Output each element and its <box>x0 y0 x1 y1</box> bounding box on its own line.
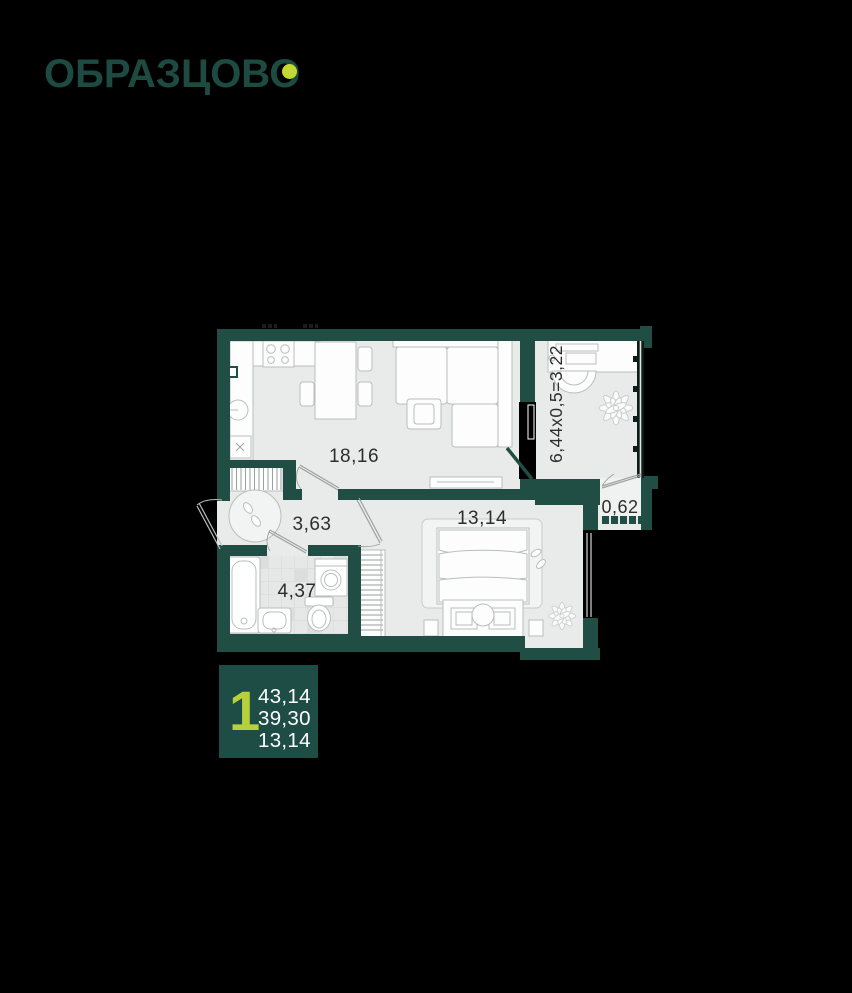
page: { "logo": { "brand": "ОБРАЗЦОВО" }, "pla… <box>0 0 852 993</box>
loggia-formula-label: 6,44x0,5=3,22 <box>546 345 566 463</box>
chair <box>300 382 314 406</box>
wardrobe <box>360 550 385 637</box>
nightstand <box>424 620 438 636</box>
chair <box>358 347 372 371</box>
dining-table <box>315 342 356 419</box>
plant <box>548 602 575 629</box>
chair <box>358 382 372 406</box>
washing-machine <box>315 559 347 596</box>
bathroom-area-label: 4,37 <box>278 581 317 602</box>
apartment-info-card: 1 43,14 39,30 13,14 <box>219 665 318 758</box>
tv-stand <box>443 600 523 637</box>
area-list: 43,14 39,30 13,14 <box>258 686 311 752</box>
bathtub <box>228 557 260 633</box>
stove <box>263 341 294 367</box>
floor-plan: 18,16 3,63 4,37 13,14 0,62 6,44x0,5=3,22 <box>0 0 852 993</box>
bedroom-area-label: 13,14 <box>457 508 507 529</box>
loggia-part-area-label: 0,62 <box>601 497 638 517</box>
desk-keyboard <box>566 353 596 364</box>
living-area: 39,30 <box>258 708 311 730</box>
plant <box>599 391 633 425</box>
hall-closet <box>228 467 283 491</box>
kitchen-living-area-label: 18,16 <box>329 446 379 467</box>
total-area: 43,14 <box>258 686 311 708</box>
rooms-count: 1 <box>229 691 260 731</box>
hallway-area-label: 3,63 <box>293 514 332 535</box>
nightstand <box>529 620 543 636</box>
dimension-marks <box>262 324 318 328</box>
tv-console <box>430 477 502 488</box>
room-area: 13,14 <box>258 730 311 752</box>
bed <box>437 528 529 604</box>
bathroom-sink <box>258 608 291 633</box>
